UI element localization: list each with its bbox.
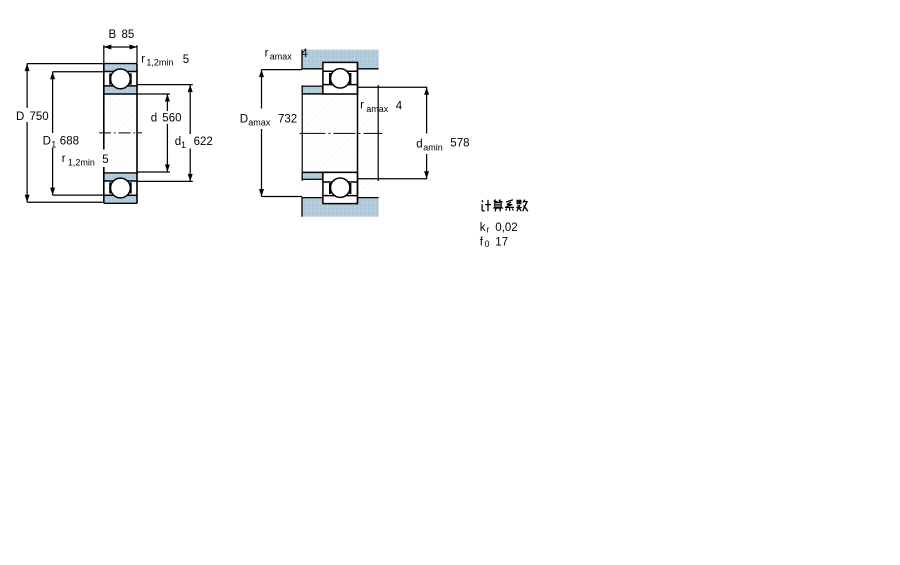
svg-text:0,02: 0,02	[495, 222, 517, 234]
svg-text:560: 560	[162, 112, 181, 124]
svg-text:622: 622	[194, 136, 213, 148]
svg-text:r: r	[487, 225, 490, 235]
svg-text:688: 688	[60, 135, 79, 147]
svg-text:4: 4	[396, 101, 403, 113]
svg-text:0: 0	[485, 239, 490, 249]
svg-text:amax: amax	[270, 52, 293, 62]
svg-text:D: D	[240, 114, 248, 126]
svg-text:5: 5	[102, 154, 108, 166]
svg-text:k: k	[480, 222, 486, 234]
svg-text:d: d	[416, 139, 422, 151]
svg-text:1: 1	[51, 140, 56, 150]
svg-text:17: 17	[495, 236, 508, 248]
svg-text:r: r	[141, 53, 145, 65]
svg-text:r: r	[62, 153, 66, 165]
svg-text:732: 732	[278, 114, 297, 126]
svg-text:1,2min: 1,2min	[68, 158, 95, 168]
svg-text:d: d	[151, 112, 157, 124]
svg-text:85: 85	[122, 29, 135, 41]
svg-text:4: 4	[301, 48, 308, 60]
svg-text:D: D	[16, 111, 24, 123]
svg-text:D: D	[43, 135, 51, 147]
svg-text:750: 750	[30, 111, 49, 123]
svg-text:amax: amax	[366, 104, 389, 114]
svg-text:1,2min: 1,2min	[146, 58, 173, 68]
svg-text:amax: amax	[248, 118, 271, 128]
svg-text:578: 578	[450, 138, 469, 150]
svg-text:amin: amin	[423, 143, 443, 153]
svg-text:1: 1	[181, 140, 186, 150]
svg-text:B: B	[109, 29, 117, 41]
svg-text:r: r	[265, 48, 269, 60]
svg-text:r: r	[360, 100, 364, 112]
svg-text:5: 5	[183, 54, 189, 66]
